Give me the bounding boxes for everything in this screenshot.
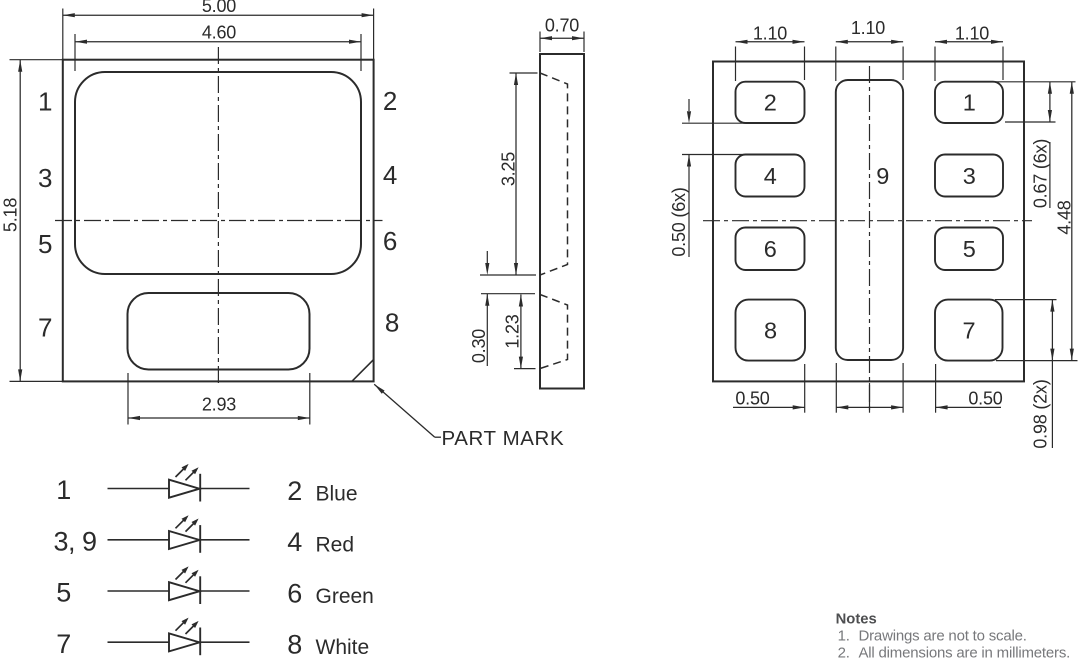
svg-text:7: 7 (962, 317, 975, 343)
svg-text:4.60: 4.60 (202, 23, 236, 43)
svg-text:1.10: 1.10 (955, 23, 989, 43)
svg-text:4: 4 (383, 160, 397, 190)
svg-text:1.: 1. (838, 628, 850, 645)
svg-text:Notes: Notes (836, 611, 877, 627)
svg-text:7: 7 (38, 312, 52, 342)
svg-text:2.93: 2.93 (202, 395, 236, 415)
svg-text:5: 5 (963, 236, 976, 262)
svg-text:0.70: 0.70 (545, 16, 579, 36)
svg-text:1.10: 1.10 (851, 18, 885, 38)
svg-text:1: 1 (38, 86, 52, 116)
svg-text:Blue: Blue (316, 482, 358, 505)
svg-text:1: 1 (56, 475, 71, 505)
svg-text:0.50: 0.50 (735, 389, 769, 409)
svg-text:7: 7 (56, 629, 71, 659)
svg-text:3: 3 (963, 163, 976, 189)
svg-text:6: 6 (383, 226, 397, 256)
svg-text:0.50 (6x): 0.50 (6x) (669, 187, 689, 256)
svg-text:0.67 (6x): 0.67 (6x) (1031, 139, 1051, 208)
svg-text:3: 3 (38, 163, 52, 193)
svg-text:2: 2 (383, 86, 397, 116)
svg-text:6: 6 (764, 236, 777, 262)
svg-text:1: 1 (963, 90, 976, 116)
svg-text:2: 2 (764, 90, 777, 116)
svg-text:White: White (316, 636, 370, 659)
svg-text:5: 5 (38, 229, 52, 259)
svg-text:0.50: 0.50 (968, 389, 1002, 409)
svg-text:8: 8 (287, 630, 302, 660)
svg-text:8: 8 (385, 307, 399, 337)
svg-text:1.23: 1.23 (503, 314, 523, 348)
svg-text:6: 6 (287, 578, 302, 608)
svg-text:PART MARK: PART MARK (442, 427, 565, 450)
svg-text:3, 9: 3, 9 (53, 527, 96, 557)
svg-text:4.48: 4.48 (1055, 200, 1075, 234)
svg-text:5: 5 (56, 578, 71, 608)
svg-text:0.98 (2x): 0.98 (2x) (1031, 379, 1051, 448)
svg-text:All dimensions are in millimet: All dimensions are in millimeters. (859, 645, 1071, 660)
svg-text:0.30: 0.30 (469, 329, 489, 363)
svg-text:Drawings are not to scale.: Drawings are not to scale. (859, 628, 1027, 645)
svg-text:5.00: 5.00 (202, 0, 236, 16)
svg-text:2: 2 (287, 476, 302, 506)
svg-text:Green: Green (316, 585, 374, 608)
svg-text:5.18: 5.18 (1, 198, 21, 232)
svg-text:Red: Red (316, 534, 355, 557)
svg-text:8: 8 (764, 317, 777, 343)
svg-text:2.: 2. (838, 645, 850, 660)
svg-text:1.10: 1.10 (753, 23, 787, 43)
svg-text:4: 4 (764, 163, 777, 189)
svg-text:4: 4 (287, 527, 302, 557)
svg-text:9: 9 (876, 163, 889, 189)
svg-text:3.25: 3.25 (499, 152, 519, 186)
